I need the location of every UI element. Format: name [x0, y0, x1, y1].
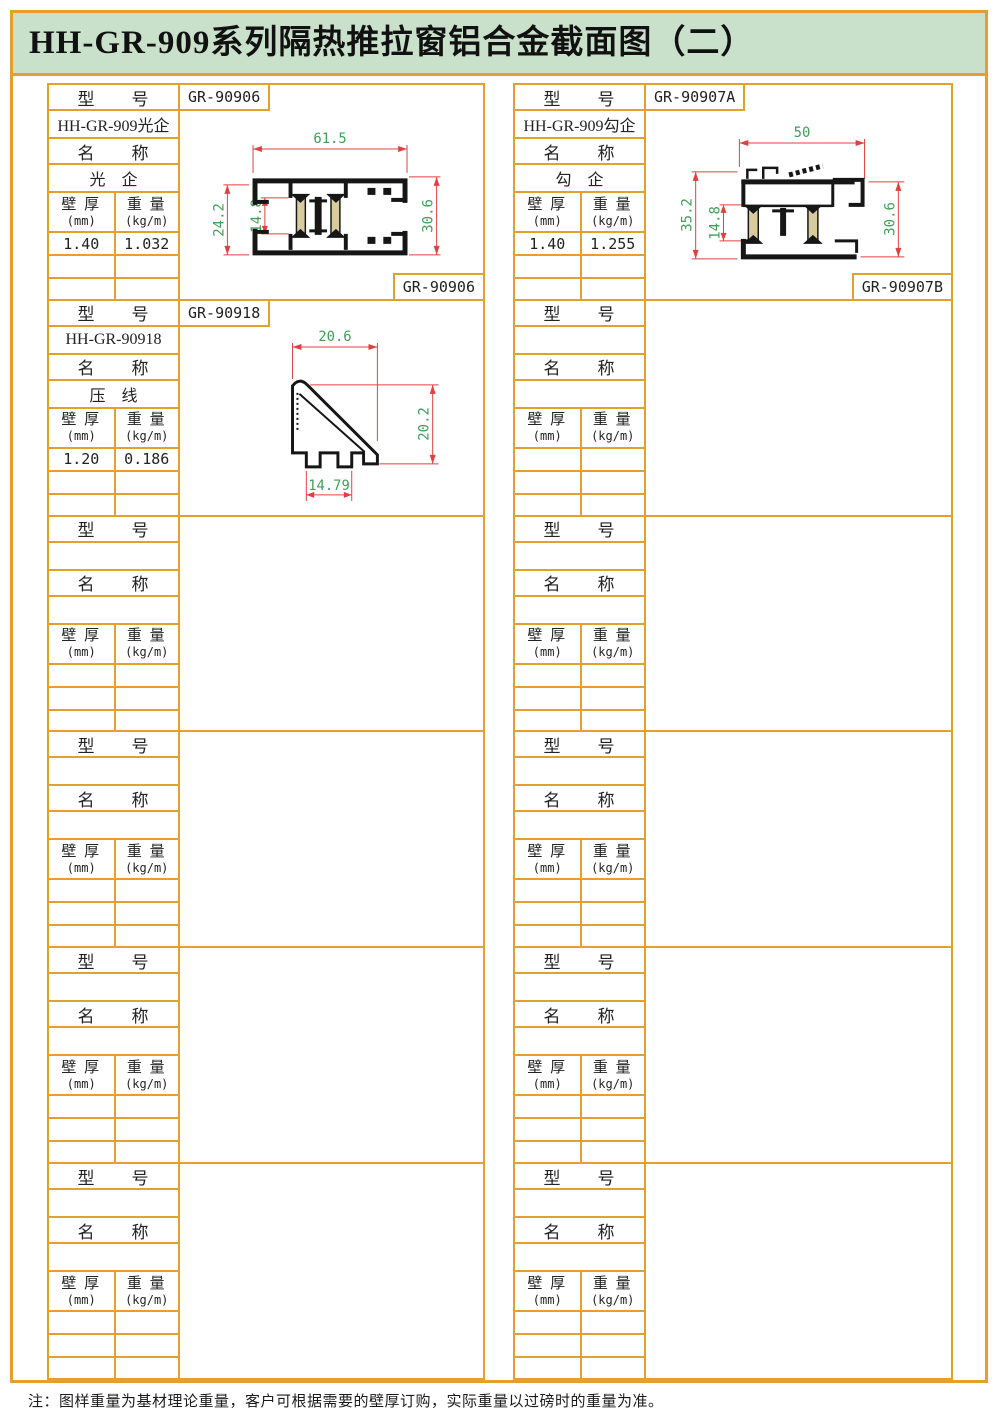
- thickness-header-cell: 壁 厚 (mm): [49, 840, 114, 878]
- drawing-area: [180, 1164, 483, 1378]
- dim-width: 50: [794, 125, 811, 141]
- empty-cell: [515, 1119, 580, 1140]
- spec-table: 型 号 HH-GR-90918 名 称 压 线 壁 厚 (mm) 重 量 (kg…: [49, 301, 180, 515]
- profile-section: 型 号 名 称 壁 厚 (mm) 重 量 (kg/m): [515, 1164, 951, 1378]
- name-header-cell: 名 称: [49, 786, 178, 812]
- empty-cell: [49, 472, 114, 493]
- model-number-box: GR-90906: [178, 83, 270, 111]
- empty-row: [49, 926, 178, 946]
- thickness-label: 壁 厚: [61, 1276, 101, 1293]
- empty-row: [49, 279, 178, 299]
- units-header-row: 壁 厚 (mm) 重 量 (kg/m): [515, 409, 644, 449]
- drawing-slot: [646, 517, 951, 731]
- drawing-slot: [646, 301, 951, 515]
- page-title: HH-GR-909系列隔热推拉窗铝合金截面图（二）: [13, 13, 985, 76]
- dim-left-height: 24.2: [212, 203, 228, 237]
- thickness-label: 壁 厚: [527, 1060, 567, 1077]
- empty-cell: [515, 903, 580, 924]
- thickness-header-cell: 壁 厚 (mm): [515, 193, 580, 231]
- thickness-unit: (mm): [533, 645, 562, 659]
- empty-row: [515, 472, 644, 495]
- empty-row: [49, 1335, 178, 1358]
- empty-cell: [515, 711, 580, 731]
- name-value-cell: [515, 1028, 644, 1056]
- empty-cell: [114, 688, 179, 709]
- profile-section: 型 号 HH-GR-90918 名 称 压 线 壁 厚 (mm) 重 量 (kg…: [49, 301, 483, 517]
- empty-cell: [580, 279, 645, 299]
- model-name-cell: [515, 758, 644, 786]
- name-header-cell: 名 称: [49, 139, 178, 165]
- drawing-area: [646, 301, 951, 515]
- spec-table: 型 号 名 称 壁 厚 (mm) 重 量 (kg/m): [515, 517, 646, 731]
- weight-unit: (kg/m): [591, 214, 634, 228]
- thickness-label: 壁 厚: [61, 197, 101, 214]
- empty-cell: [515, 688, 580, 709]
- weight-value-cell: [114, 665, 179, 686]
- table-column-left: 型 号 HH-GR-909光企 名 称 光 企 壁 厚 (mm) 重 量 (kg…: [47, 83, 485, 1380]
- thickness-unit: (mm): [67, 645, 96, 659]
- model-header-cell: 型 号: [515, 1164, 644, 1190]
- drawing-label-box: GR-90906: [393, 273, 485, 301]
- empty-row: [515, 1142, 644, 1162]
- model-header-cell: 型 号: [49, 1164, 178, 1190]
- weight-header-cell: 重 量 (kg/m): [114, 625, 179, 663]
- empty-row: [515, 926, 644, 946]
- thickness-value-cell: [49, 880, 114, 901]
- drawing-area: [646, 517, 951, 731]
- name-value-cell: 光 企: [49, 165, 178, 193]
- empty-cell: [580, 472, 645, 493]
- empty-row: [515, 688, 644, 711]
- weight-unit: (kg/m): [591, 1077, 634, 1091]
- spec-table: 型 号 名 称 壁 厚 (mm) 重 量 (kg/m): [49, 517, 180, 731]
- thickness-unit: (mm): [67, 1077, 96, 1091]
- thickness-label: 壁 厚: [527, 412, 567, 429]
- name-header-cell: 名 称: [49, 571, 178, 597]
- spec-table: 型 号 名 称 壁 厚 (mm) 重 量 (kg/m): [515, 301, 646, 515]
- weight-label: 重 量: [127, 844, 167, 861]
- profile-drawing-gr90907: 50 35.2 14.8 30.6: [646, 85, 951, 299]
- weight-header-cell: 重 量 (kg/m): [580, 1272, 645, 1310]
- weight-value-cell: 1.032: [114, 233, 179, 254]
- empty-cell: [49, 711, 114, 731]
- weight-value-cell: 1.255: [580, 233, 645, 254]
- thickness-value-cell: 1.20: [49, 449, 114, 470]
- empty-cell: [580, 256, 645, 277]
- units-header-row: 壁 厚 (mm) 重 量 (kg/m): [49, 409, 178, 449]
- profile-section: 型 号 名 称 壁 厚 (mm) 重 量 (kg/m): [515, 301, 951, 517]
- spec-table: 型 号 名 称 壁 厚 (mm) 重 量 (kg/m): [515, 1164, 646, 1378]
- weight-label: 重 量: [593, 844, 633, 861]
- dim-thermal-height: 14.8: [708, 206, 724, 240]
- thickness-header-cell: 壁 厚 (mm): [49, 1272, 114, 1310]
- drawing-label-box: GR-90907B: [852, 273, 953, 301]
- model-header-cell: 型 号: [515, 517, 644, 543]
- thickness-header-cell: 壁 厚 (mm): [49, 193, 114, 231]
- values-row: [515, 1096, 644, 1119]
- weight-header-cell: 重 量 (kg/m): [580, 840, 645, 878]
- empty-row: [515, 711, 644, 731]
- weight-value-cell: 0.186: [114, 449, 179, 470]
- profile-section: 型 号 名 称 壁 厚 (mm) 重 量 (kg/m): [49, 948, 483, 1164]
- model-name-cell: [49, 1190, 178, 1218]
- name-header-cell: 名 称: [515, 571, 644, 597]
- empty-cell: [515, 1358, 580, 1378]
- weight-header-cell: 重 量 (kg/m): [114, 840, 179, 878]
- units-header-row: 壁 厚 (mm) 重 量 (kg/m): [515, 1272, 644, 1312]
- values-row: 1.40 1.032: [49, 233, 178, 256]
- name-value-cell: [515, 381, 644, 409]
- name-header-cell: 名 称: [49, 1218, 178, 1244]
- weight-value-cell: [114, 880, 179, 901]
- drawing-slot: [646, 732, 951, 946]
- spec-table: 型 号 名 称 壁 厚 (mm) 重 量 (kg/m): [49, 732, 180, 946]
- empty-cell: [515, 926, 580, 946]
- weight-header-cell: 重 量 (kg/m): [580, 1056, 645, 1094]
- name-header-cell: 名 称: [515, 786, 644, 812]
- thickness-label: 壁 厚: [527, 197, 567, 214]
- drawing-area: [646, 1164, 951, 1378]
- thickness-header-cell: 壁 厚 (mm): [515, 1272, 580, 1310]
- profile-section: 型 号 名 称 壁 厚 (mm) 重 量 (kg/m): [515, 732, 951, 948]
- weight-label: 重 量: [127, 412, 167, 429]
- weight-header-cell: 重 量 (kg/m): [114, 1272, 179, 1310]
- thickness-label: 壁 厚: [61, 1060, 101, 1077]
- drawing-slot: [646, 1164, 951, 1378]
- model-name-cell: [49, 758, 178, 786]
- thickness-unit: (mm): [533, 861, 562, 875]
- empty-cell: [580, 495, 645, 515]
- model-name-cell: [515, 327, 644, 355]
- model-header-cell: 型 号: [49, 517, 178, 543]
- values-row: [49, 880, 178, 903]
- empty-row: [49, 711, 178, 731]
- empty-cell: [580, 688, 645, 709]
- weight-value-cell: [114, 1312, 179, 1333]
- drawing-slot: [180, 1164, 483, 1378]
- thickness-value-cell: 1.40: [49, 233, 114, 254]
- profile-section: 型 号 名 称 壁 厚 (mm) 重 量 (kg/m): [515, 517, 951, 733]
- weight-value-cell: [580, 1096, 645, 1117]
- table-column-right: 型 号 HH-GR-909勾企 名 称 勾 企 壁 厚 (mm) 重 量 (kg…: [513, 83, 953, 1380]
- empty-cell: [49, 688, 114, 709]
- empty-cell: [580, 1119, 645, 1140]
- units-header-row: 壁 厚 (mm) 重 量 (kg/m): [515, 1056, 644, 1096]
- thickness-label: 壁 厚: [527, 844, 567, 861]
- weight-value-cell: [580, 880, 645, 901]
- name-header-cell: 名 称: [515, 1002, 644, 1028]
- name-value-cell: [515, 812, 644, 840]
- thickness-unit: (mm): [533, 429, 562, 443]
- empty-row: [515, 495, 644, 515]
- name-value-cell: [49, 1028, 178, 1056]
- empty-cell: [49, 903, 114, 924]
- thickness-label: 壁 厚: [527, 1276, 567, 1293]
- spec-table: 型 号 名 称 壁 厚 (mm) 重 量 (kg/m): [515, 732, 646, 946]
- empty-row: [49, 1142, 178, 1162]
- empty-row: [515, 903, 644, 926]
- empty-cell: [114, 495, 179, 515]
- empty-row: [49, 688, 178, 711]
- empty-cell: [49, 1358, 114, 1378]
- units-header-row: 壁 厚 (mm) 重 量 (kg/m): [49, 840, 178, 880]
- empty-cell: [580, 1358, 645, 1378]
- drawing-area: [180, 948, 483, 1162]
- model-header-cell: 型 号: [49, 948, 178, 974]
- weight-label: 重 量: [593, 1060, 633, 1077]
- empty-row: [49, 472, 178, 495]
- profile-section: 型 号 HH-GR-909光企 名 称 光 企 壁 厚 (mm) 重 量 (kg…: [49, 85, 483, 301]
- weight-label: 重 量: [593, 197, 633, 214]
- weight-label: 重 量: [127, 628, 167, 645]
- spec-table: 型 号 名 称 壁 厚 (mm) 重 量 (kg/m): [515, 948, 646, 1162]
- drawing-slot: 61.5 24.2 14.8 30.6: [180, 85, 483, 299]
- weight-header-cell: 重 量 (kg/m): [580, 625, 645, 663]
- drawing-area: GR-90918 20.6 20.2 14.79: [180, 301, 483, 515]
- dim-left-height: 35.2: [680, 198, 696, 232]
- model-header-cell: 型 号: [49, 732, 178, 758]
- empty-cell: [49, 495, 114, 515]
- model-header-cell: 型 号: [49, 301, 178, 327]
- model-name-cell: [49, 543, 178, 571]
- empty-cell: [49, 1119, 114, 1140]
- drawing-area: [180, 732, 483, 946]
- name-value-cell: 勾 企: [515, 165, 644, 193]
- name-value-cell: [49, 597, 178, 625]
- model-name-cell: [515, 543, 644, 571]
- values-row: [49, 1096, 178, 1119]
- profile-drawing-gr90918: 20.6 20.2 14.79: [180, 301, 483, 515]
- spec-table: 型 号 HH-GR-909勾企 名 称 勾 企 壁 厚 (mm) 重 量 (kg…: [515, 85, 646, 299]
- weight-value-cell: [580, 665, 645, 686]
- weight-unit: (kg/m): [591, 861, 634, 875]
- values-row: [49, 665, 178, 688]
- empty-cell: [515, 495, 580, 515]
- empty-cell: [49, 1142, 114, 1162]
- weight-value-cell: [114, 1096, 179, 1117]
- thickness-header-cell: 壁 厚 (mm): [515, 840, 580, 878]
- spec-table: 型 号 名 称 壁 厚 (mm) 重 量 (kg/m): [49, 1164, 180, 1378]
- dim-top-width: 20.6: [318, 329, 351, 345]
- thickness-unit: (mm): [533, 1293, 562, 1307]
- thickness-value-cell: [515, 880, 580, 901]
- name-value-cell: [49, 1244, 178, 1272]
- empty-row: [515, 279, 644, 299]
- values-row: [515, 1312, 644, 1335]
- thickness-unit: (mm): [67, 214, 96, 228]
- empty-cell: [114, 903, 179, 924]
- weight-unit: (kg/m): [125, 1293, 168, 1307]
- thickness-header-cell: 壁 厚 (mm): [49, 625, 114, 663]
- values-row: 1.20 0.186: [49, 449, 178, 472]
- weight-header-cell: 重 量 (kg/m): [114, 1056, 179, 1094]
- thickness-header-cell: 壁 厚 (mm): [515, 409, 580, 447]
- weight-value-cell: [580, 449, 645, 470]
- model-header-cell: 型 号: [515, 85, 644, 111]
- thickness-value-cell: [515, 1312, 580, 1333]
- empty-row: [49, 903, 178, 926]
- drawing-area: [646, 948, 951, 1162]
- empty-cell: [580, 1335, 645, 1356]
- drawing-area: [180, 517, 483, 731]
- drawing-slot: 50 35.2 14.8 30.6: [646, 85, 951, 299]
- name-header-cell: 名 称: [515, 1218, 644, 1244]
- weight-unit: (kg/m): [125, 861, 168, 875]
- thickness-value-cell: [49, 1312, 114, 1333]
- empty-row: [49, 495, 178, 515]
- model-name-cell: HH-GR-909光企: [49, 111, 178, 139]
- name-value-cell: [49, 812, 178, 840]
- drawing-slot: 20.6 20.2 14.79: [180, 301, 483, 515]
- profile-section: 型 号 名 称 壁 厚 (mm) 重 量 (kg/m): [49, 732, 483, 948]
- model-name-cell: [515, 974, 644, 1002]
- weight-label: 重 量: [127, 1060, 167, 1077]
- values-row: [515, 449, 644, 472]
- weight-unit: (kg/m): [125, 214, 168, 228]
- model-name-cell: HH-GR-90918: [49, 327, 178, 355]
- profile-section: 型 号 名 称 壁 厚 (mm) 重 量 (kg/m): [515, 948, 951, 1164]
- footer-note: 注：图样重量为基材理论重量，客户可根据需要的壁厚订购，实际重量以过磅时的重量为准…: [28, 1390, 664, 1411]
- thickness-label: 壁 厚: [61, 844, 101, 861]
- empty-cell: [580, 903, 645, 924]
- empty-row: [49, 1119, 178, 1142]
- weight-unit: (kg/m): [591, 429, 634, 443]
- dim-bottom-width: 14.79: [308, 478, 350, 494]
- thickness-unit: (mm): [533, 214, 562, 228]
- profile-drawing-gr90906: 61.5 24.2 14.8 30.6: [180, 85, 483, 299]
- empty-cell: [515, 1142, 580, 1162]
- model-header-cell: 型 号: [49, 85, 178, 111]
- empty-cell: [114, 256, 179, 277]
- drawing-area: GR-90907A 50 35.2 14.8 30.6: [646, 85, 951, 299]
- empty-cell: [114, 1119, 179, 1140]
- empty-cell: [114, 926, 179, 946]
- values-row: 1.40 1.255: [515, 233, 644, 256]
- units-header-row: 壁 厚 (mm) 重 量 (kg/m): [515, 625, 644, 665]
- empty-cell: [580, 711, 645, 731]
- weight-label: 重 量: [127, 197, 167, 214]
- weight-unit: (kg/m): [591, 645, 634, 659]
- values-row: [49, 1312, 178, 1335]
- empty-cell: [114, 472, 179, 493]
- dim-right-height: 20.2: [417, 407, 433, 441]
- thickness-value-cell: 1.40: [515, 233, 580, 254]
- empty-cell: [580, 926, 645, 946]
- weight-unit: (kg/m): [125, 645, 168, 659]
- weight-label: 重 量: [593, 628, 633, 645]
- thickness-header-cell: 壁 厚 (mm): [515, 625, 580, 663]
- weight-unit: (kg/m): [591, 1293, 634, 1307]
- empty-row: [515, 1358, 644, 1378]
- weight-label: 重 量: [593, 1276, 633, 1293]
- drawing-slot: [180, 517, 483, 731]
- units-header-row: 壁 厚 (mm) 重 量 (kg/m): [515, 193, 644, 233]
- weight-label: 重 量: [593, 412, 633, 429]
- empty-cell: [580, 1142, 645, 1162]
- empty-cell: [114, 1335, 179, 1356]
- profile-section: 型 号 名 称 壁 厚 (mm) 重 量 (kg/m): [49, 1164, 483, 1378]
- empty-row: [515, 256, 644, 279]
- units-header-row: 壁 厚 (mm) 重 量 (kg/m): [515, 840, 644, 880]
- thickness-header-cell: 壁 厚 (mm): [49, 409, 114, 447]
- dim-width: 61.5: [313, 131, 346, 147]
- drawing-slot: [646, 948, 951, 1162]
- thickness-unit: (mm): [67, 861, 96, 875]
- model-header-cell: 型 号: [515, 948, 644, 974]
- model-header-cell: 型 号: [515, 732, 644, 758]
- name-value-cell: [515, 597, 644, 625]
- drawing-slot: [180, 948, 483, 1162]
- weight-unit: (kg/m): [125, 1077, 168, 1091]
- name-header-cell: 名 称: [49, 355, 178, 381]
- model-number-box: GR-90907A: [644, 83, 745, 111]
- thickness-value-cell: [515, 665, 580, 686]
- spec-table: 型 号 HH-GR-909光企 名 称 光 企 壁 厚 (mm) 重 量 (kg…: [49, 85, 180, 299]
- thickness-value-cell: [49, 1096, 114, 1117]
- weight-header-cell: 重 量 (kg/m): [580, 409, 645, 447]
- thickness-value-cell: [515, 449, 580, 470]
- empty-cell: [49, 279, 114, 299]
- profile-section: 型 号 名 称 壁 厚 (mm) 重 量 (kg/m): [49, 517, 483, 733]
- drawing-area: GR-90906 61.5 24.2 14.8 30.6: [180, 85, 483, 299]
- thickness-header-cell: 壁 厚 (mm): [515, 1056, 580, 1094]
- empty-cell: [114, 279, 179, 299]
- values-row: [515, 665, 644, 688]
- thickness-label: 壁 厚: [61, 628, 101, 645]
- units-header-row: 壁 厚 (mm) 重 量 (kg/m): [49, 625, 178, 665]
- empty-row: [515, 1335, 644, 1358]
- empty-cell: [49, 256, 114, 277]
- empty-cell: [515, 279, 580, 299]
- name-header-cell: 名 称: [515, 139, 644, 165]
- drawing-area: [646, 732, 951, 946]
- name-value-cell: [515, 1244, 644, 1272]
- model-name-cell: HH-GR-909勾企: [515, 111, 644, 139]
- empty-row: [515, 1119, 644, 1142]
- empty-cell: [49, 926, 114, 946]
- thickness-unit: (mm): [533, 1077, 562, 1091]
- empty-row: [49, 256, 178, 279]
- name-header-cell: 名 称: [49, 1002, 178, 1028]
- units-header-row: 壁 厚 (mm) 重 量 (kg/m): [49, 1272, 178, 1312]
- name-value-cell: 压 线: [49, 381, 178, 409]
- weight-value-cell: [580, 1312, 645, 1333]
- weight-label: 重 量: [127, 1276, 167, 1293]
- empty-cell: [49, 1335, 114, 1356]
- weight-header-cell: 重 量 (kg/m): [114, 193, 179, 231]
- empty-cell: [515, 472, 580, 493]
- thickness-header-cell: 壁 厚 (mm): [49, 1056, 114, 1094]
- empty-cell: [515, 1335, 580, 1356]
- weight-header-cell: 重 量 (kg/m): [114, 409, 179, 447]
- empty-cell: [515, 256, 580, 277]
- thickness-value-cell: [515, 1096, 580, 1117]
- thickness-label: 壁 厚: [61, 412, 101, 429]
- thickness-unit: (mm): [67, 1293, 96, 1307]
- spec-table: 型 号 名 称 壁 厚 (mm) 重 量 (kg/m): [49, 948, 180, 1162]
- weight-header-cell: 重 量 (kg/m): [580, 193, 645, 231]
- drawing-slot: [180, 732, 483, 946]
- name-header-cell: 名 称: [515, 355, 644, 381]
- model-header-cell: 型 号: [515, 301, 644, 327]
- model-number-box: GR-90918: [178, 299, 270, 327]
- dim-right-height: 30.6: [421, 199, 437, 233]
- empty-cell: [114, 1142, 179, 1162]
- dim-right-height: 30.6: [882, 202, 898, 236]
- profile-section: 型 号 HH-GR-909勾企 名 称 勾 企 壁 厚 (mm) 重 量 (kg…: [515, 85, 951, 301]
- thickness-value-cell: [49, 665, 114, 686]
- thickness-label: 壁 厚: [527, 628, 567, 645]
